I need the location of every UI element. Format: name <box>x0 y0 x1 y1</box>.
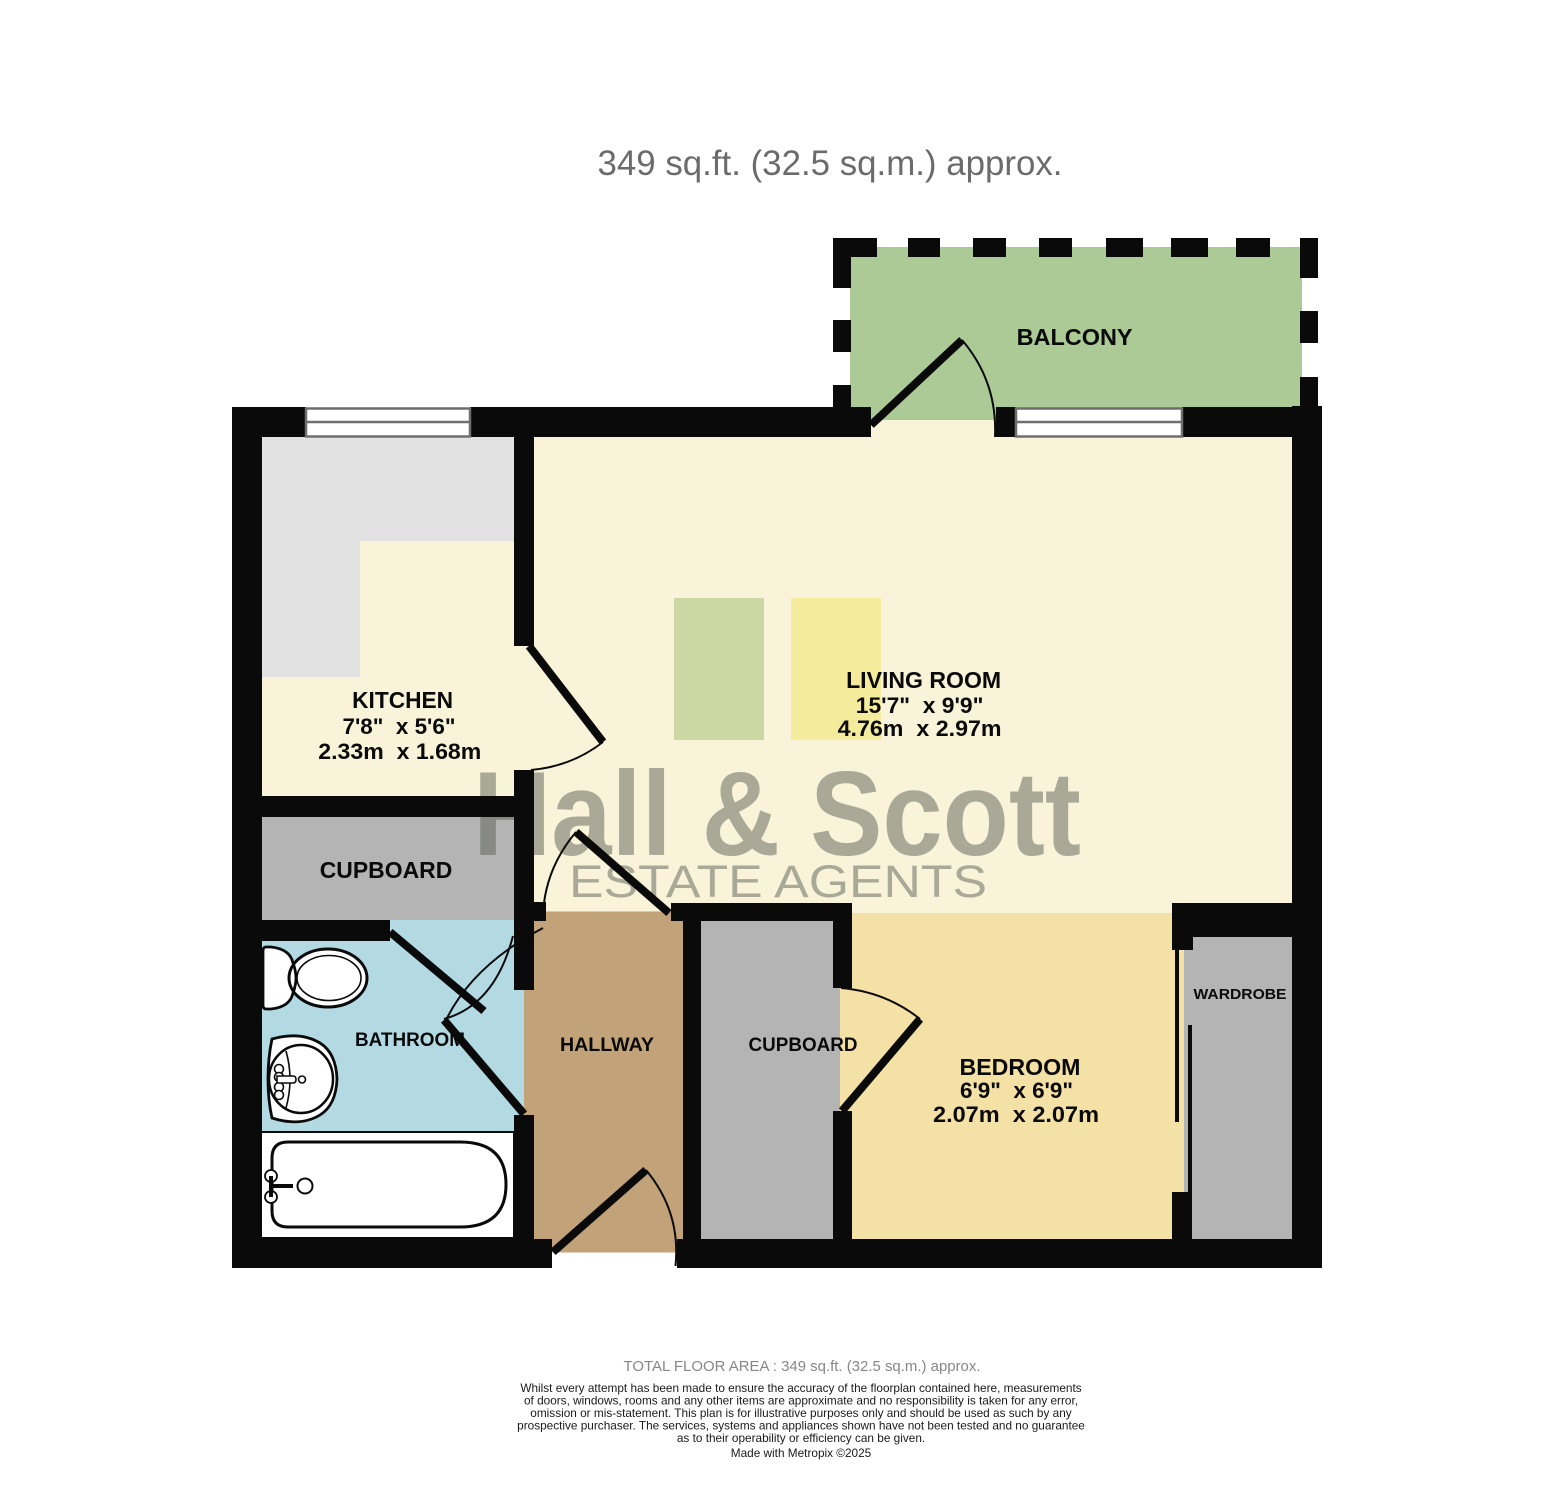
svg-text:4.76m x 2.97m: 4.76m x 2.97m <box>838 716 1002 741</box>
svg-text:WARDROBE: WARDROBE <box>1194 986 1287 1003</box>
svg-text:349 sq.ft. (32.5 sq.m.) approx: 349 sq.ft. (32.5 sq.m.) approx. <box>598 144 1063 183</box>
svg-text:2.33m x 1.68m: 2.33m x 1.68m <box>318 739 481 764</box>
svg-text:as to their operability or eff: as to their operability or efficiency ca… <box>677 1431 925 1445</box>
svg-text:HALLWAY: HALLWAY <box>560 1034 654 1056</box>
svg-text:7'8" x 5'6": 7'8" x 5'6" <box>343 714 456 739</box>
svg-text:6'9" x 6'9": 6'9" x 6'9" <box>960 1078 1073 1103</box>
svg-text:KITCHEN: KITCHEN <box>352 687 453 713</box>
svg-text:BATHROOM: BATHROOM <box>355 1030 465 1051</box>
svg-text:CUPBOARD: CUPBOARD <box>320 857 453 883</box>
svg-text:15'7" x 9'9": 15'7" x 9'9" <box>856 693 984 718</box>
svg-text:CUPBOARD: CUPBOARD <box>749 1035 858 1056</box>
svg-text:TOTAL FLOOR AREA : 349 sq.ft.: TOTAL FLOOR AREA : 349 sq.ft. (32.5 sq.m… <box>624 1358 981 1375</box>
svg-text:LIVING ROOM: LIVING ROOM <box>846 667 1001 693</box>
svg-text:2.07m x 2.07m: 2.07m x 2.07m <box>933 1102 1099 1127</box>
svg-text:BALCONY: BALCONY <box>1017 324 1133 350</box>
svg-text:Made with Metropix ©2025: Made with Metropix ©2025 <box>731 1446 872 1460</box>
svg-text:BEDROOM: BEDROOM <box>960 1054 1081 1080</box>
